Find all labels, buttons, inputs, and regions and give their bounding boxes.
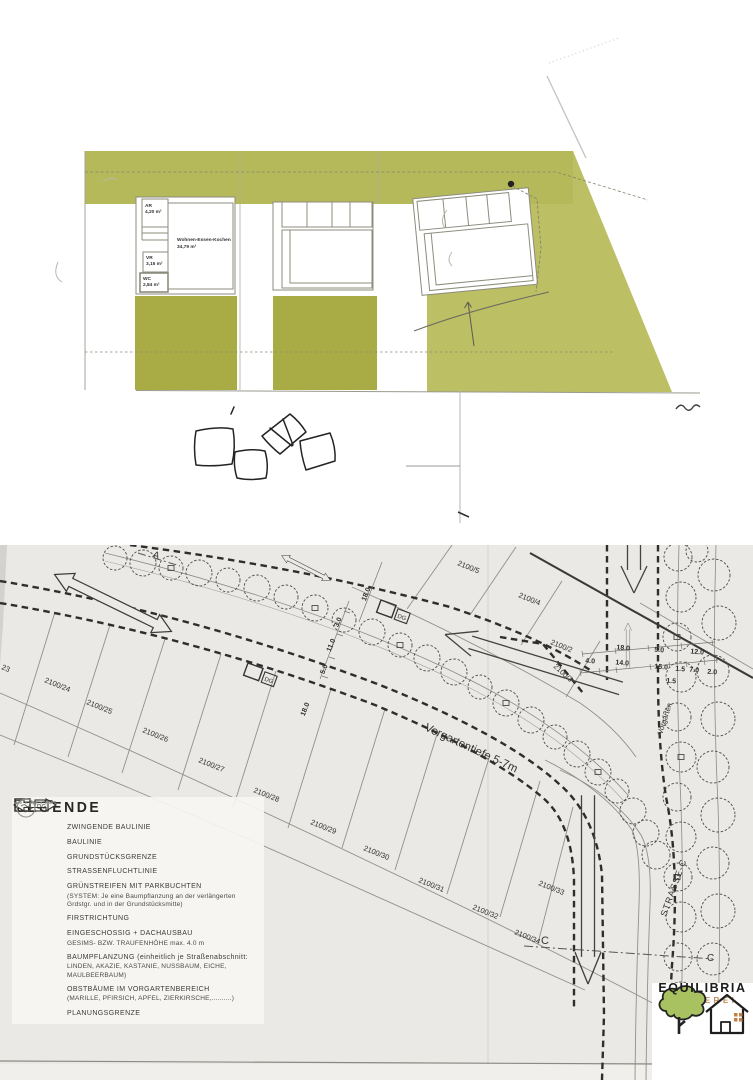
dim-label: 1.5 [675, 666, 685, 674]
legend-label: FIRSTRICHTUNG [67, 915, 129, 922]
pen-squiggle [676, 405, 700, 410]
room-wc-name: WC [143, 276, 152, 282]
dim-label: 14.0 [615, 659, 629, 667]
legend-item-grundstuecksgrenze: GRUNDSTÜCKSGRENZE [12, 854, 264, 863]
legend-sublabel: GESIMS- BZW. TRAUFENHÖHE max. 4.0 m [67, 940, 204, 948]
room-wohnen-area: 34,79 m² [177, 244, 197, 250]
legend-item-zwingende-baulinie: ZWINGENDE BAULINIE [12, 824, 264, 833]
sheet-bottom-strip [0, 1064, 658, 1080]
floor-plan-sheet: AR 4,20 m² Wohnen-Essen-Kochen 34,79 m² … [0, 0, 753, 545]
circle-icon [12, 986, 67, 987]
room-wohnen-name: Wohnen-Essen-Kochen [177, 237, 231, 243]
double-arrow-icon [12, 915, 67, 916]
dim-label: 15.0 [654, 663, 668, 671]
legend-item-strassenfluchtlinie: STRASSENFLUCHTLINIE [12, 868, 264, 877]
dim-label: 18.0 [616, 644, 630, 652]
thin-line-icon [12, 854, 67, 855]
legend-label: EINGESCHOSSIG + DACHAUSBAU [67, 930, 193, 937]
section-letter-c: C [541, 935, 549, 947]
room-vr-area: 3,15 m² [146, 261, 163, 267]
legend-sublabel: LINDEN, AKAZIE, KASTANIE, NUSSBAUM, EICH… [67, 963, 252, 979]
legend-item-eingeschossig: DG EINGESCHOSSIG + DACHAUSBAU GESIMS- BZ… [12, 930, 264, 948]
legend-label: ZWINGENDE BAULINIE [67, 824, 151, 831]
legend-item-baulinie: BAULINIE [12, 839, 264, 848]
legend-item-gruenstreifen: GRÜNSTREIFEN MIT PARKBUCHTEN (SYSTEM: Je… [12, 883, 264, 909]
legend-label: STRASSENFLUCHTLINIE [67, 868, 157, 875]
dim-label: 4.0 [585, 658, 595, 666]
dash-dot-grey-icon [12, 1010, 67, 1011]
room-wc-area: 2,84 m² [143, 282, 160, 288]
dim-label: 5.0 [654, 647, 664, 655]
legend-item-obstbaeume: OBSTBÄUME IM VORGARTENBEREICH (MARILLE, … [12, 986, 264, 1004]
legend-label: OBSTBÄUME IM VORGARTENBEREICH [67, 986, 210, 993]
room-vr-name: VR [146, 255, 153, 261]
dim-label: 12.0 [690, 648, 704, 656]
brand-logo: EQUILIBRIA MAKLEREI [652, 983, 753, 1080]
legend: LEGENDE ZWINGENDE BAULINIE BAULINIE GRUN… [12, 797, 264, 1024]
legend-label: BAUMPFLANZUNG (einheitlich je Straßenabs… [67, 954, 248, 961]
room-ar-name: AR [145, 203, 152, 209]
section-letter-c-right: C [707, 953, 714, 964]
legend-label: GRÜNSTREIFEN MIT PARKBUCHTEN [67, 883, 202, 890]
legend-label: BAULINIE [67, 839, 102, 846]
house-unit-2 [273, 202, 373, 290]
dashed-line-icon [12, 839, 67, 840]
dim-label: 2.0 [707, 669, 717, 677]
legend-item-planungsgrenze: PLANUNGSGRENZE [12, 1010, 264, 1019]
solid-line-icon [12, 824, 67, 825]
house-windows [734, 1013, 743, 1022]
house-unit-3 [413, 188, 538, 296]
dash-dot-line-icon [12, 868, 67, 869]
legend-item-baumpflanzung: BAUMPFLANZUNG (einheitlich je Straßenabs… [12, 954, 264, 980]
logo-name: EQUILIBRIA [652, 981, 753, 996]
room-ar-area: 4,20 m² [145, 209, 162, 215]
legend-label: GRUNDSTÜCKSGRENZE [67, 854, 157, 861]
legend-sublabel: (SYSTEM: Je eine Baumpflanzung an der ve… [67, 893, 252, 909]
parkbuchten-icon [12, 883, 67, 884]
dim-label: 1.5 [666, 678, 676, 686]
sheet-edge-lines [547, 38, 619, 158]
squares-dg-icon: DG [12, 930, 67, 931]
tree-scribble-icon [12, 954, 67, 955]
hand-sketch [195, 407, 336, 480]
fold-marks [406, 390, 700, 523]
listing-plan-composite: AR 4,20 m² Wohnen-Essen-Kochen 34,79 m² … [0, 0, 753, 1080]
dim-label: 7.0 [689, 667, 699, 675]
legend-item-firstrichtung: FIRSTRICHTUNG [12, 915, 264, 924]
legend-sublabel: (MARILLE, PFIRSICH, APFEL, ZIERKIRSCHE,.… [67, 995, 234, 1003]
legend-label: PLANUNGSGRENZE [67, 1010, 140, 1017]
